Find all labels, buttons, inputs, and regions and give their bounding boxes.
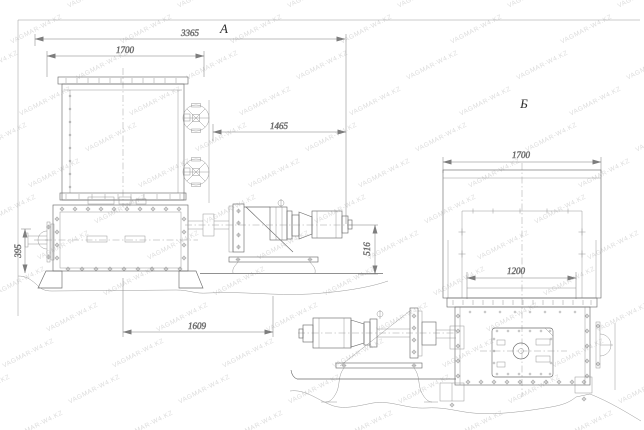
dim-overall-a: 3365 xyxy=(35,28,346,224)
view-a: А 3365 1700 1465 xyxy=(13,21,388,337)
access-door-b xyxy=(480,328,567,377)
drive-a xyxy=(185,199,352,252)
dim-overall-a-label: 3365 xyxy=(180,28,200,38)
dim-height-drive-a-label: 516 xyxy=(362,242,372,256)
dim-inner-b-label: 1200 xyxy=(507,266,526,276)
support-b xyxy=(290,363,641,421)
handwheel-icon xyxy=(183,100,209,203)
hopper-b xyxy=(443,163,601,397)
drawing-svg: А 3365 1700 1465 xyxy=(0,0,644,430)
dim-hopper-a: 1700 xyxy=(47,45,204,77)
drawing-canvas: VAGMAR-W4.KZVAGMAR-W4.KZVAGMAR-W4.KZVAGM… xyxy=(0,0,644,430)
ground-line-b xyxy=(290,391,641,421)
dim-hopper-a-label: 1700 xyxy=(116,45,135,55)
dim-height-left-a-label: 395 xyxy=(13,244,23,259)
dim-inner-b: 1200 xyxy=(467,266,576,299)
dim-drive-a-label: 1465 xyxy=(270,121,289,131)
view-b-label: Б xyxy=(519,96,528,111)
dim-base-a-label: 1609 xyxy=(188,321,207,331)
dim-height-left-a: 395 xyxy=(13,229,31,273)
hopper-a xyxy=(58,68,209,207)
body-a xyxy=(38,197,203,288)
drive-b xyxy=(298,308,464,366)
view-b: Б 1700 1200 xyxy=(290,96,641,421)
ground-line-a xyxy=(18,276,388,294)
body-b xyxy=(440,298,597,407)
dim-top-b-label: 1700 xyxy=(512,150,531,160)
view-a-label: А xyxy=(219,21,228,36)
left-bracket-a xyxy=(25,222,54,262)
right-bracket-b xyxy=(596,322,615,390)
sheet-frame xyxy=(18,20,640,316)
support-a xyxy=(18,257,388,294)
dim-height-drive-a: 516 xyxy=(349,225,378,274)
dim-drive-a: 1465 xyxy=(213,121,346,141)
dim-base-a: 1609 xyxy=(123,278,273,337)
